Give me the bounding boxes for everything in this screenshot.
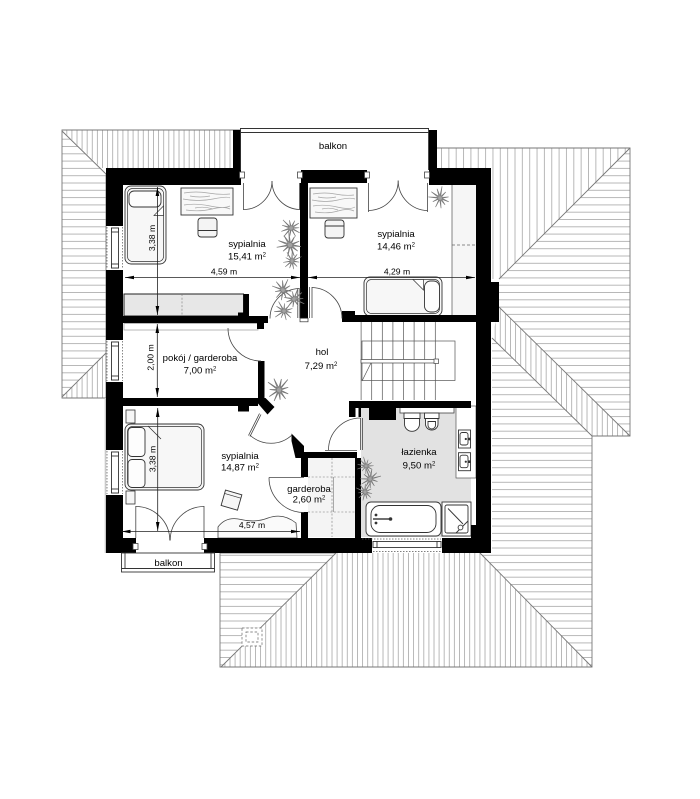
svg-text:hol: hol	[316, 347, 329, 358]
svg-text:2,60 m2: 2,60 m2	[293, 495, 326, 506]
svg-text:2,00 m: 2,00 m	[146, 344, 156, 370]
svg-text:4,57 m: 4,57 m	[239, 520, 265, 530]
svg-text:sypialnia: sypialnia	[221, 451, 259, 462]
svg-text:sypialnia: sypialnia	[228, 239, 266, 250]
svg-text:3,38 m: 3,38 m	[147, 446, 157, 472]
svg-text:sypialnia: sypialnia	[377, 229, 415, 240]
svg-text:15,41 m2: 15,41 m2	[228, 252, 267, 263]
svg-text:4,29 m: 4,29 m	[384, 267, 410, 277]
svg-text:7,29 m2: 7,29 m2	[305, 361, 338, 372]
svg-text:garderoba: garderoba	[287, 484, 331, 495]
svg-text:3,38 m: 3,38 m	[147, 225, 157, 251]
svg-text:14,87 m2: 14,87 m2	[221, 463, 260, 474]
svg-text:balkon: balkon	[154, 558, 182, 569]
svg-text:4,59 m: 4,59 m	[211, 267, 237, 277]
svg-text:14,46 m2: 14,46 m2	[377, 242, 416, 253]
svg-text:pokój / garderoba: pokój / garderoba	[163, 353, 238, 364]
svg-text:łazienka: łazienka	[401, 447, 437, 458]
svg-text:balkon: balkon	[319, 141, 347, 152]
svg-text:7,00 m2: 7,00 m2	[184, 366, 217, 377]
svg-text:9,50 m2: 9,50 m2	[403, 461, 436, 472]
